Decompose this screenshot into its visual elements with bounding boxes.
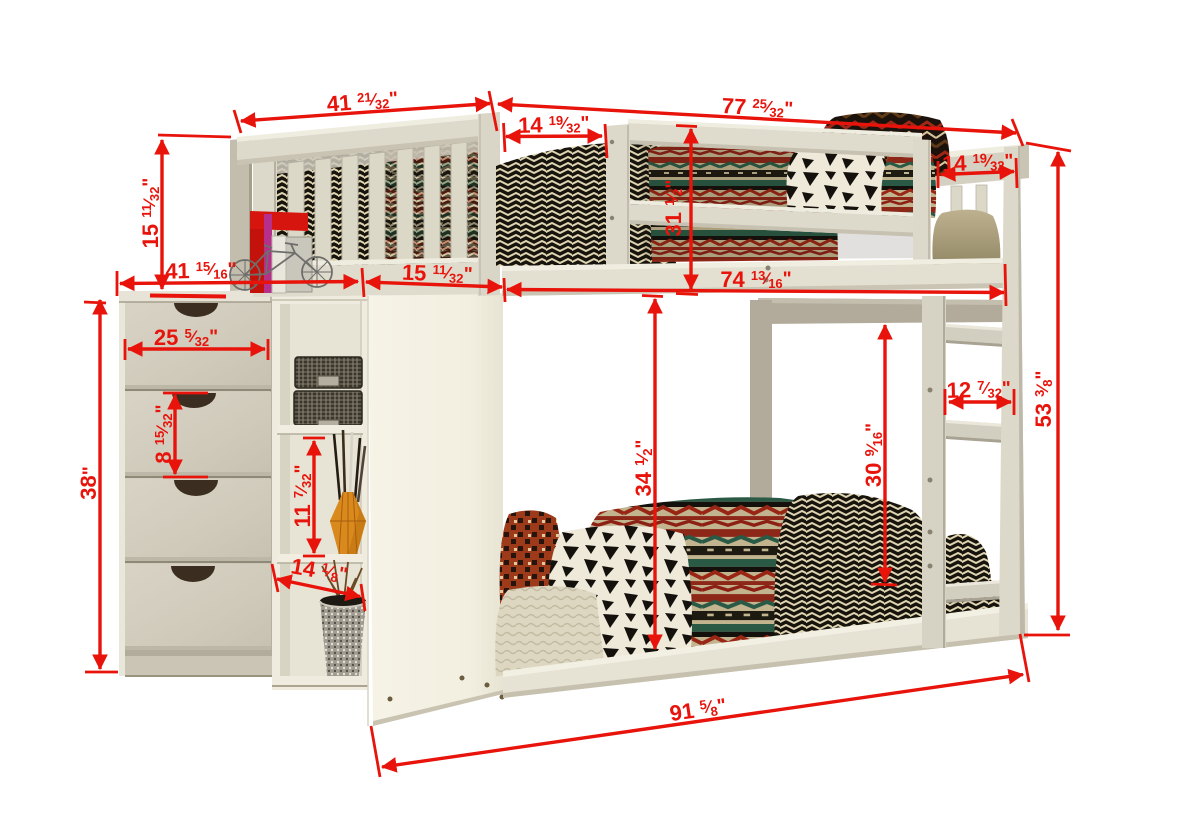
- svg-text:34 1⁄2": 34 1⁄2": [631, 440, 656, 497]
- svg-text:31 1⁄2": 31 1⁄2": [661, 180, 686, 237]
- svg-text:38": 38": [76, 466, 101, 500]
- svg-text:53 3⁄8": 53 3⁄8": [1031, 371, 1056, 428]
